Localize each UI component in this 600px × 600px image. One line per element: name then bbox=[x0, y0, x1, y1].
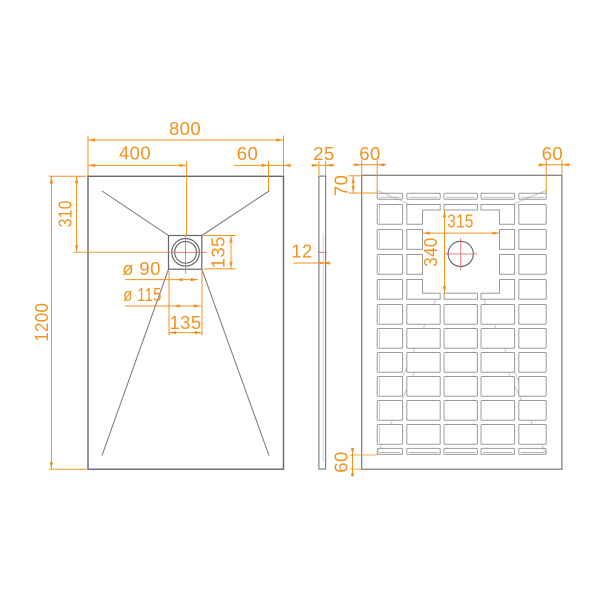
svg-text:800: 800 bbox=[169, 118, 201, 139]
svg-text:12: 12 bbox=[291, 240, 312, 261]
svg-text:70: 70 bbox=[331, 175, 352, 196]
svg-text:25: 25 bbox=[313, 143, 334, 164]
svg-text:135: 135 bbox=[169, 312, 201, 333]
svg-text:400: 400 bbox=[119, 143, 151, 164]
svg-text:60: 60 bbox=[237, 143, 258, 164]
svg-text:1200: 1200 bbox=[31, 303, 52, 342]
svg-text:60: 60 bbox=[542, 143, 563, 164]
svg-text:310: 310 bbox=[55, 200, 76, 227]
svg-text:ø 90: ø 90 bbox=[122, 258, 161, 279]
svg-text:60: 60 bbox=[359, 143, 380, 164]
svg-text:60: 60 bbox=[331, 451, 352, 472]
svg-text:315: 315 bbox=[447, 210, 474, 231]
svg-text:340: 340 bbox=[420, 237, 441, 267]
svg-text:ø 115: ø 115 bbox=[123, 284, 162, 305]
svg-text:135: 135 bbox=[208, 236, 229, 268]
